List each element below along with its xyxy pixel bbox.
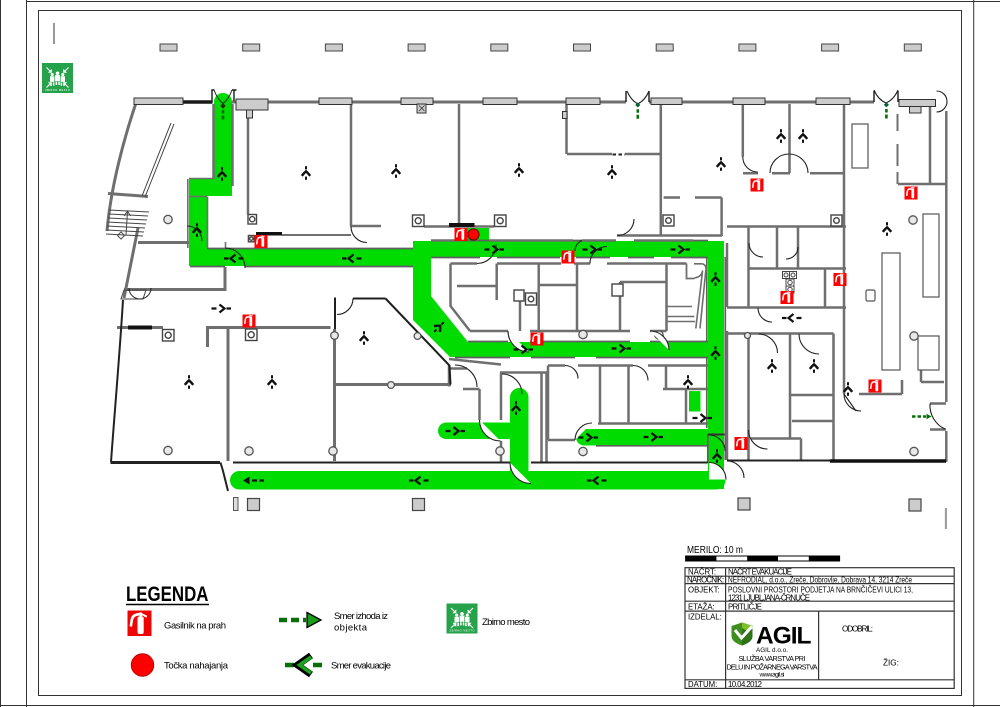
svg-text:IZDELAL:: IZDELAL: — [688, 613, 722, 622]
svg-text:NAROČNIK:: NAROČNIK: — [687, 575, 724, 584]
svg-text:NEFRODIAL, d.o.o., Zreče, Dobr: NEFRODIAL, d.o.o., Zreče, Dobrovlje, Dob… — [728, 575, 912, 584]
svg-text:OBJEKT:: OBJEKT: — [688, 586, 720, 595]
svg-text:DATUM:: DATUM: — [688, 680, 717, 689]
svg-text:DELU IN POŽARNEGA VARSTVA: DELU IN POŽARNEGA VARSTVA — [727, 662, 818, 671]
svg-text:AGIL d.o.o.: AGIL d.o.o. — [756, 647, 788, 654]
svg-text:1231 LJUBLJANA-ČRNUČE: 1231 LJUBLJANA-ČRNUČE — [728, 593, 810, 602]
svg-text:10.04.2012: 10.04.2012 — [728, 680, 762, 689]
svg-text:ŽIG:: ŽIG: — [883, 658, 899, 668]
svg-text:LEGENDA: LEGENDA — [126, 583, 209, 606]
svg-text:www.agil.si: www.agil.si — [759, 672, 785, 679]
svg-text:Gasilnik na prah: Gasilnik na prah — [164, 621, 226, 632]
svg-text:Točka nahajanja: Točka nahajanja — [164, 661, 229, 672]
svg-text:PRITLIČJE: PRITLIČJE — [728, 602, 762, 611]
svg-text:Smer evakuacije: Smer evakuacije — [331, 661, 391, 672]
svg-text:ETAŽA:: ETAŽA: — [688, 602, 715, 611]
svg-text:ODOBRIL:: ODOBRIL: — [842, 625, 873, 634]
svg-text:AGIL: AGIL — [756, 623, 812, 650]
svg-text:Zbirno mesto: Zbirno mesto — [482, 617, 530, 628]
svg-text:MERILO: 10 m: MERILO: 10 m — [687, 545, 743, 556]
